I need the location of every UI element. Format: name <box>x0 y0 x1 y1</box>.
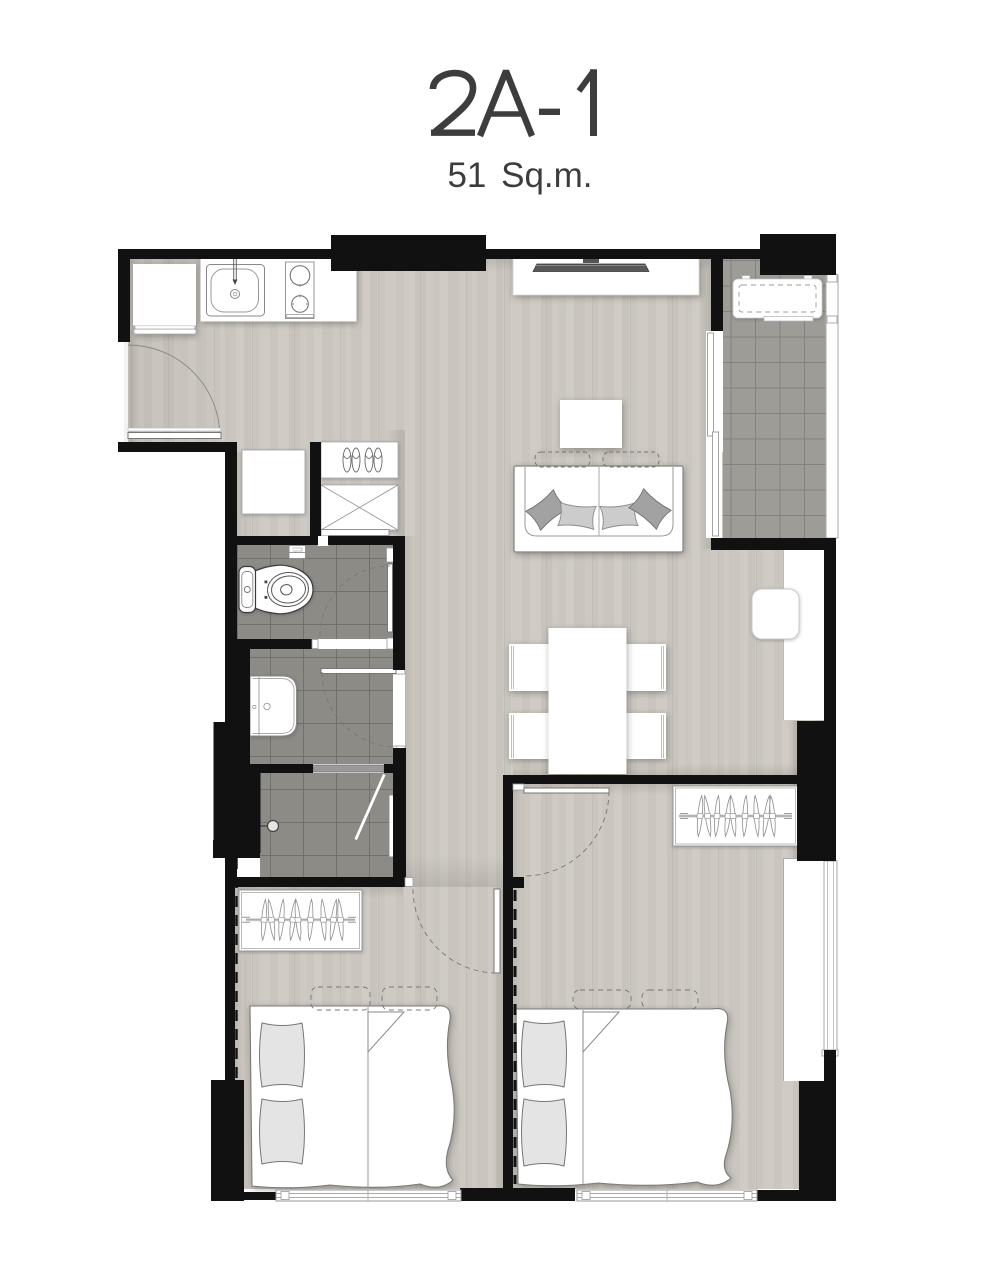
svg-text:51 Sq.m.: 51 Sq.m. <box>447 156 592 195</box>
